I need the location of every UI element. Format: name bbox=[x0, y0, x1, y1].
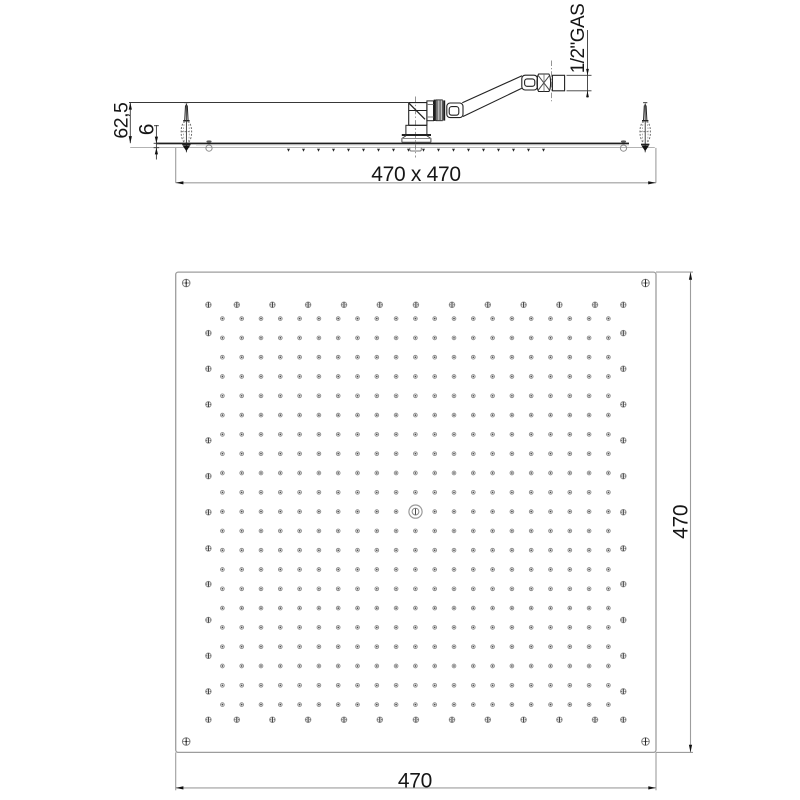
svg-text:470 x 470: 470 x 470 bbox=[371, 163, 461, 186]
svg-text:62,5: 62,5 bbox=[110, 102, 132, 139]
svg-text:6: 6 bbox=[135, 124, 158, 136]
svg-text:470: 470 bbox=[398, 769, 432, 792]
svg-text:1/2"GAS: 1/2"GAS bbox=[568, 4, 589, 73]
svg-text:470: 470 bbox=[669, 505, 692, 539]
